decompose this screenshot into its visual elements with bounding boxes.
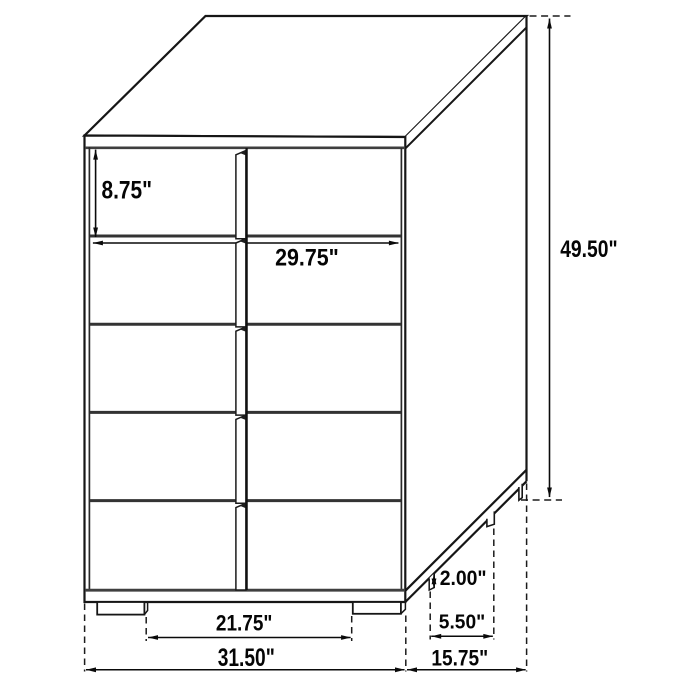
svg-text:8.75": 8.75" [102, 178, 153, 205]
svg-text:2.00": 2.00" [440, 567, 487, 590]
svg-text:21.75": 21.75" [216, 611, 273, 636]
svg-text:15.75": 15.75" [431, 646, 488, 671]
svg-text:5.50": 5.50" [439, 612, 485, 634]
svg-text:31.50": 31.50" [218, 645, 275, 672]
svg-text:49.50": 49.50" [560, 236, 617, 263]
svg-text:29.75": 29.75" [275, 245, 339, 272]
